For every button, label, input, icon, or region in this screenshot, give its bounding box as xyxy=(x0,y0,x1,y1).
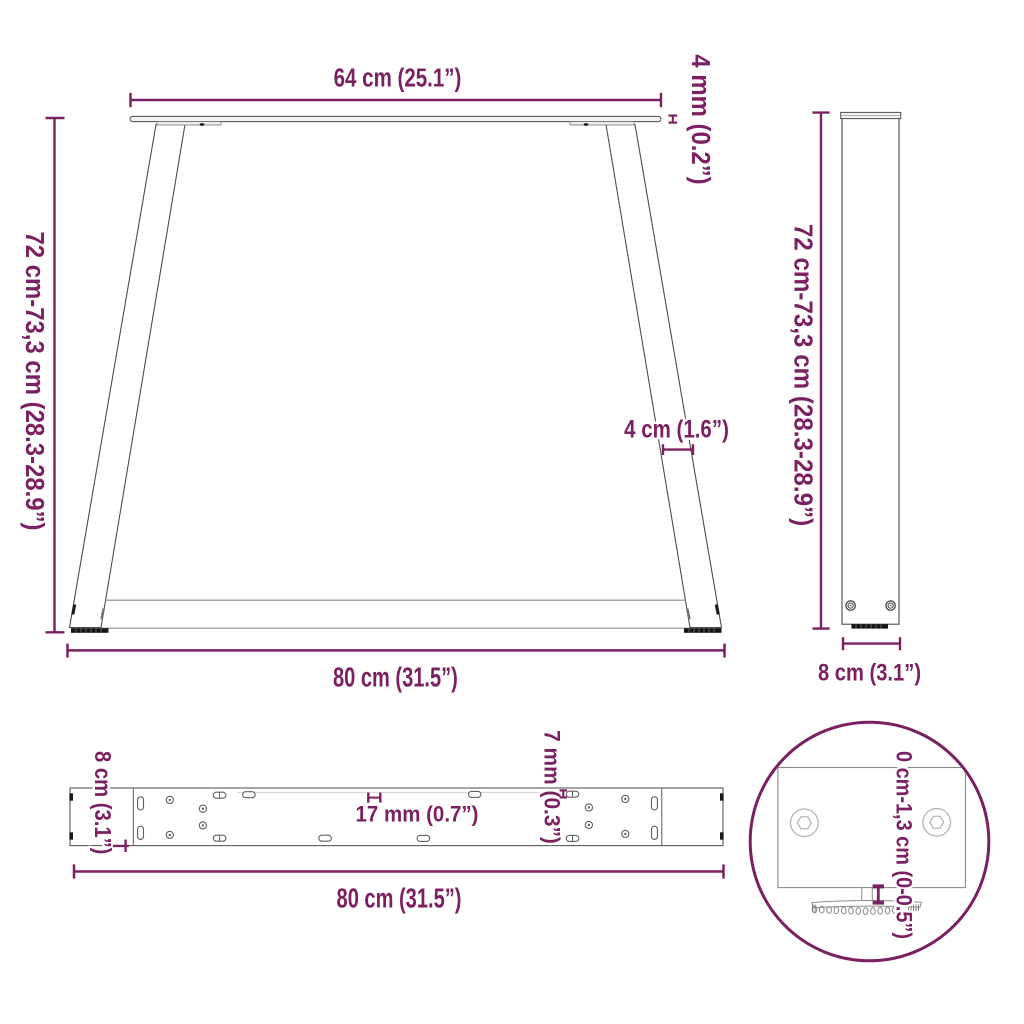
svg-text:0 cm-1,3 cm (0-0.5”): 0 cm-1,3 cm (0-0.5”) xyxy=(891,751,915,939)
svg-text:80 cm (31.5”): 80 cm (31.5”) xyxy=(333,663,458,694)
svg-text:8 cm (3.1”): 8 cm (3.1”) xyxy=(90,751,117,854)
svg-text:72 cm-73,3 cm (28.3-28.9”): 72 cm-73,3 cm (28.3-28.9”) xyxy=(20,231,49,530)
svg-text:7 mm (0.3”): 7 mm (0.3”) xyxy=(539,730,564,844)
svg-text:4 cm (1.6”): 4 cm (1.6”) xyxy=(624,414,729,442)
svg-text:4 mm (0.2”): 4 mm (0.2”) xyxy=(686,54,715,184)
svg-text:80 cm (31.5”): 80 cm (31.5”) xyxy=(337,883,462,914)
svg-text:64 cm (25.1”): 64 cm (25.1”) xyxy=(334,63,462,92)
svg-text:8 cm (3.1”): 8 cm (3.1”) xyxy=(818,659,921,686)
svg-text:17 mm (0.7”): 17 mm (0.7”) xyxy=(356,803,479,827)
svg-text:72 cm-73,3 cm (28.3-28.9”): 72 cm-73,3 cm (28.3-28.9”) xyxy=(788,224,817,526)
